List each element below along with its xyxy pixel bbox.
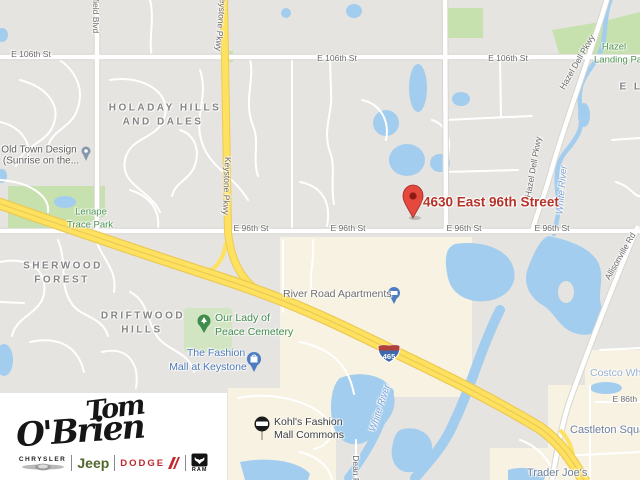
park-label-lenape[interactable]: Lenape	[75, 207, 107, 218]
poi-label-costco[interactable]: Costco Wh	[590, 367, 640, 379]
interstate-shield-number: 465	[383, 352, 396, 361]
logo-brand-row: CHRYSLER Jeep DODGE	[4, 451, 223, 475]
park-label-hazel-landing[interactable]: Landing Park	[594, 55, 640, 66]
dodge-stripes-icon	[167, 457, 180, 469]
poi-label-kohls[interactable]: Mall Commons	[274, 429, 344, 441]
brand-divider	[185, 455, 186, 471]
poi-label-old-town-design[interactable]: (Sunrise on the...	[3, 156, 79, 167]
park-label-hazel-landing[interactable]: Hazel	[602, 42, 626, 53]
park-label-lenape[interactable]: Trace Park	[67, 220, 113, 231]
poi-label-old-town-design[interactable]: Old Town Design	[1, 145, 76, 156]
chrysler-wings-icon	[21, 463, 65, 471]
poi-label-kohls[interactable]: Kohl's Fashion	[274, 416, 343, 428]
poi-label-fashion-mall[interactable]: Mall at Keystone	[169, 361, 247, 373]
chrysler-wordmark: CHRYSLER	[19, 456, 67, 463]
marker-address-label[interactable]: 4630 East 96th Street	[423, 195, 559, 210]
poi-label-cemetery[interactable]: Our Lady of	[215, 312, 270, 324]
poi-label-castleton-square[interactable]: Castleton Squar	[570, 424, 640, 436]
poi-label-trader-joes[interactable]: Trader Joe's	[527, 467, 587, 479]
poi-label-river-road-apts[interactable]: River Road Apartments	[283, 288, 392, 300]
map-screenshot: 465	[0, 0, 640, 480]
ram-brand: RAM	[191, 453, 208, 473]
brand-divider	[71, 455, 72, 471]
logo-signature-last-name: O'Brien	[15, 407, 145, 455]
dodge-wordmark: DODGE	[120, 458, 165, 469]
jeep-wordmark: Jeep	[77, 455, 109, 471]
dodge-brand: DODGE	[120, 457, 180, 469]
dealership-logo: Tom O'Brien CHRYSLER Jeep DODGE	[0, 393, 227, 480]
ram-wordmark: RAM	[192, 467, 208, 473]
ram-head-icon	[191, 453, 208, 467]
poi-label-fashion-mall[interactable]: The Fashion	[187, 347, 245, 359]
poi-label-cemetery[interactable]: Peace Cemetery	[215, 326, 293, 338]
river-island	[558, 281, 574, 303]
chrysler-brand: CHRYSLER	[19, 456, 67, 471]
brand-divider	[114, 455, 115, 471]
